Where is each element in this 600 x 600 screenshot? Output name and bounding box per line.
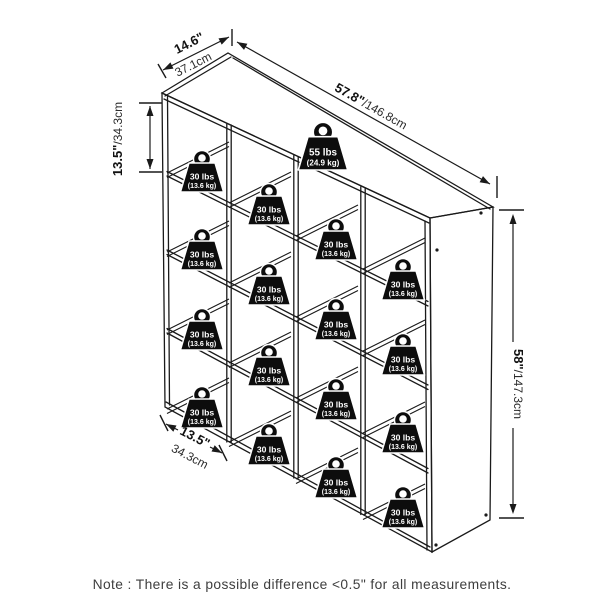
svg-text:(13.6 kg): (13.6 kg) — [255, 296, 283, 303]
svg-text:30 lbs: 30 lbs — [324, 240, 349, 250]
weight-30lbs-icon: 30 lbs (13.6 kg) — [382, 487, 425, 529]
svg-text:(13.6 kg): (13.6 kg) — [255, 456, 283, 463]
svg-text:55 lbs: 55 lbs — [309, 148, 338, 159]
dimension-depth: 14.6" 37.1cm — [158, 29, 232, 80]
svg-text:30 lbs: 30 lbs — [257, 366, 282, 376]
cam-hole — [434, 543, 437, 546]
svg-text:(13.6 kg): (13.6 kg) — [389, 444, 417, 451]
weight-30lbs-icon: 30 lbs (13.6 kg) — [315, 457, 358, 499]
svg-text:30 lbs: 30 lbs — [324, 320, 349, 330]
svg-text:(13.6 kg): (13.6 kg) — [322, 331, 350, 338]
height-label: 58"/147.3cm — [511, 349, 526, 419]
svg-text:(24.9 kg): (24.9 kg) — [307, 158, 340, 167]
svg-text:30 lbs: 30 lbs — [257, 285, 282, 295]
svg-text:(13.6 kg): (13.6 kg) — [255, 377, 283, 384]
weight-30lbs-icon: 30 lbs (13.6 kg) — [181, 387, 224, 429]
weight-55lbs-icon: 55 lbs (24.9 kg) — [298, 122, 348, 170]
svg-text:(13.6 kg): (13.6 kg) — [322, 251, 350, 258]
weight-30lbs-icon: 30 lbs (13.6 kg) — [181, 151, 224, 193]
weight-30lbs-icon: 30 lbs (13.6 kg) — [382, 412, 425, 454]
svg-text:30 lbs: 30 lbs — [324, 400, 349, 410]
cam-hole — [479, 211, 482, 214]
cam-hole — [435, 248, 438, 251]
dimension-height: 58"/147.3cm — [499, 210, 526, 518]
weight-30lbs-icon: 30 lbs (13.6 kg) — [181, 229, 224, 271]
svg-text:(13.6 kg): (13.6 kg) — [188, 183, 216, 190]
cube-height-label: 13.5"/34.3cm — [110, 102, 125, 176]
svg-text:30 lbs: 30 lbs — [391, 355, 416, 365]
svg-text:(13.6 kg): (13.6 kg) — [389, 519, 417, 526]
svg-text:30 lbs: 30 lbs — [257, 445, 282, 455]
measurement-note: Note : There is a possible difference <0… — [93, 577, 512, 592]
svg-text:(13.6 kg): (13.6 kg) — [389, 291, 417, 298]
cube-organizer-dimension-diagram: 30 lbs (13.6 kg) 30 lbs (13.6 kg) 30 lbs… — [0, 0, 600, 600]
side-panel — [430, 207, 493, 552]
weight-30lbs-icon: 30 lbs (13.6 kg) — [315, 379, 358, 421]
weight-30lbs-icon: 30 lbs (13.6 kg) — [382, 259, 425, 301]
screenshot-canvas: 30 lbs (13.6 kg) 30 lbs (13.6 kg) 30 lbs… — [0, 0, 600, 600]
svg-text:(13.6 kg): (13.6 kg) — [188, 341, 216, 348]
weight-30lbs-icon: 30 lbs (13.6 kg) — [382, 334, 425, 376]
svg-text:30 lbs: 30 lbs — [190, 408, 215, 418]
weight-30lbs-icon: 30 lbs (13.6 kg) — [248, 264, 291, 306]
svg-text:(13.6 kg): (13.6 kg) — [188, 261, 216, 268]
svg-text:(13.6 kg): (13.6 kg) — [322, 411, 350, 418]
weight-30lbs-icon: 30 lbs (13.6 kg) — [181, 309, 224, 351]
svg-text:30 lbs: 30 lbs — [190, 172, 215, 182]
width-label: 57.8"/146.8cm — [332, 80, 410, 133]
weight-30lbs-icon: 30 lbs (13.6 kg) — [315, 219, 358, 261]
dimension-cube-height: 13.5"/34.3cm — [110, 102, 162, 176]
dimension-width: 57.8"/146.8cm — [237, 42, 497, 198]
svg-text:30 lbs: 30 lbs — [324, 478, 349, 488]
svg-text:(13.6 kg): (13.6 kg) — [322, 489, 350, 496]
svg-text:30 lbs: 30 lbs — [257, 205, 282, 215]
weight-30lbs-icon: 30 lbs (13.6 kg) — [248, 184, 291, 226]
svg-text:(13.6 kg): (13.6 kg) — [255, 216, 283, 223]
svg-text:30 lbs: 30 lbs — [391, 508, 416, 518]
cam-hole — [484, 513, 487, 516]
svg-text:30 lbs: 30 lbs — [190, 330, 215, 340]
svg-text:30 lbs: 30 lbs — [190, 250, 215, 260]
svg-text:(13.6 kg): (13.6 kg) — [188, 419, 216, 426]
svg-text:(13.6 kg): (13.6 kg) — [389, 366, 417, 373]
svg-text:30 lbs: 30 lbs — [391, 433, 416, 443]
svg-text:30 lbs: 30 lbs — [391, 280, 416, 290]
